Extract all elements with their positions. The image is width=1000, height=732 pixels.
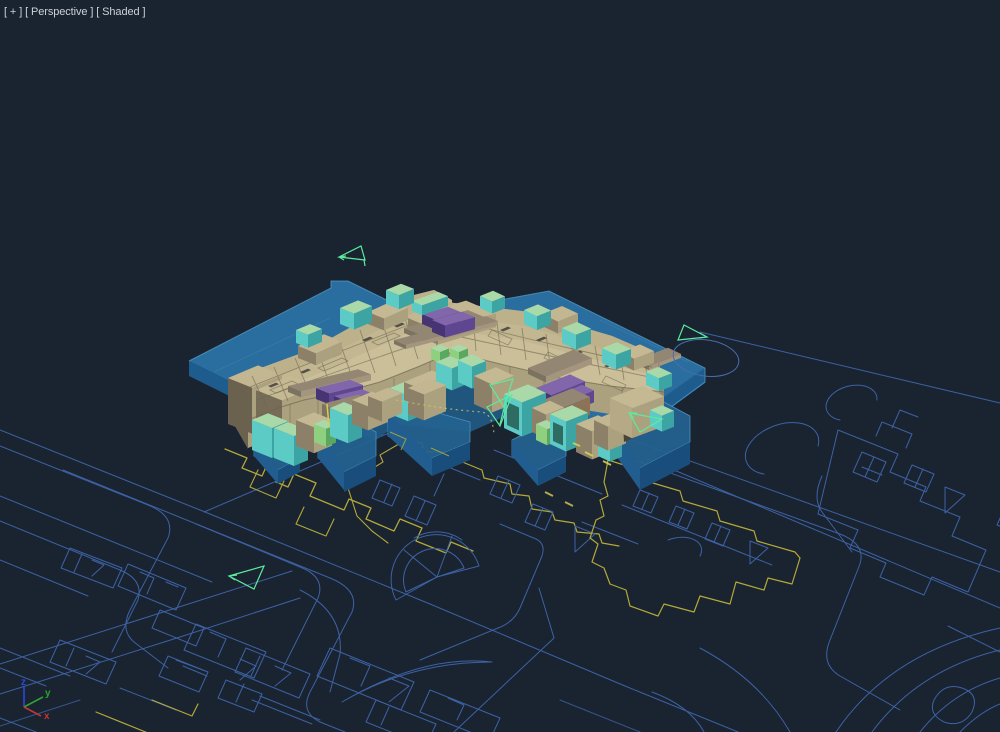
svg-text:[ + ] [ Perspective ] [ Shaded: [ + ] [ Perspective ] [ Shaded ] [4, 6, 145, 18]
svg-text:x: x [44, 711, 50, 722]
svg-text:z: z [21, 677, 26, 688]
svg-text:y: y [45, 688, 51, 699]
